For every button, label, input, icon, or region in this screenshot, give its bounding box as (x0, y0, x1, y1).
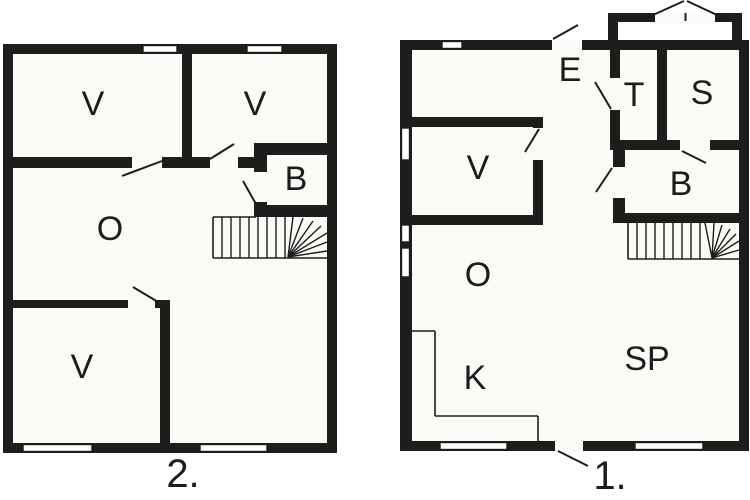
door-opening (532, 128, 544, 160)
room-label: V (467, 149, 490, 187)
window (200, 445, 267, 452)
room-label: V (244, 85, 267, 123)
window (247, 46, 282, 53)
floor-number-label: 2. (166, 452, 199, 496)
room-label: O (465, 256, 491, 294)
room-label: S (691, 74, 714, 112)
room-label: V (71, 348, 94, 386)
window (442, 42, 462, 49)
wall (739, 40, 749, 451)
window (440, 443, 507, 450)
window (402, 248, 410, 277)
door-opening (210, 156, 238, 169)
floor-plan-canvas: VVBOV2.ETSVBOKSP1. (0, 0, 750, 500)
room-label: B (285, 160, 308, 198)
wall (608, 13, 618, 44)
upper-floor-plan: VVBOV2. (3, 44, 337, 496)
door-opening (612, 167, 626, 198)
window (143, 46, 177, 53)
door-opening (555, 440, 583, 452)
door-opening (680, 139, 710, 151)
wall (327, 44, 337, 453)
room-label: V (82, 85, 105, 123)
wall (182, 54, 192, 168)
door-opening (253, 172, 268, 202)
wall (254, 205, 337, 217)
wall (400, 40, 412, 451)
door-opening (609, 78, 621, 110)
wall (400, 117, 543, 127)
wall (400, 215, 543, 225)
wall (732, 13, 742, 44)
floor-number-label: 1. (593, 454, 626, 498)
floor-plan-diagram: VVBOV2.ETSVBOKSP1. (0, 0, 750, 500)
window (402, 128, 410, 160)
wall (160, 300, 170, 453)
room-label: B (670, 165, 693, 203)
room-label: E (559, 51, 582, 89)
room-label: K (464, 359, 487, 397)
window (635, 443, 703, 450)
wall (610, 140, 749, 150)
wall (613, 213, 749, 223)
room-label: O (97, 210, 123, 248)
door-opening (552, 39, 582, 51)
window (402, 225, 410, 242)
wall (657, 50, 667, 150)
ground-floor-plan: ETSVBOKSP1. (400, 1, 749, 498)
door-opening (128, 299, 155, 309)
room-label: SP (624, 340, 669, 378)
window (23, 445, 92, 452)
wall (3, 44, 13, 453)
room-label: T (624, 76, 645, 114)
